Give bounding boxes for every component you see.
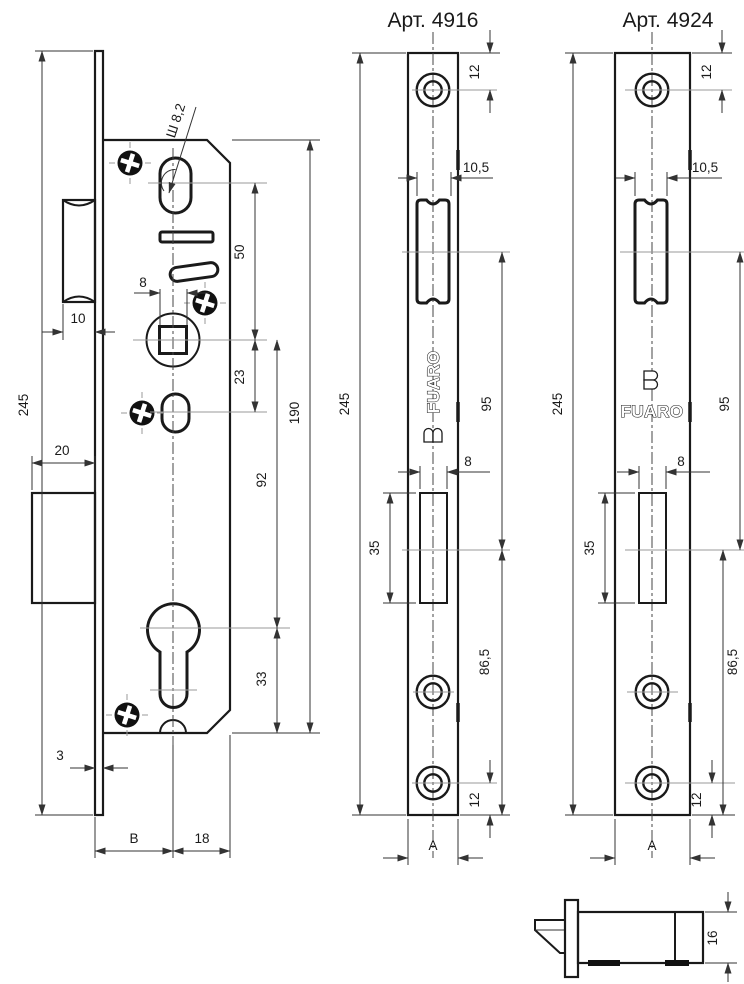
dim-axis-to-back-edge: 18 xyxy=(194,831,209,846)
top-oval-slot xyxy=(160,158,191,213)
dim-overall-height: 245 xyxy=(337,393,352,416)
dim-plate-width: A xyxy=(647,838,656,853)
dim-plate-width: A xyxy=(428,838,437,853)
fuaro-emblem-icon xyxy=(424,429,442,443)
dim-slot-note: Ш 8,2 xyxy=(163,102,188,140)
dim-oval-to-spindle: 50 xyxy=(232,244,247,259)
dim-latch-to-deadbolt: 95 xyxy=(479,396,494,411)
title-article-4916: Арт. 4916 xyxy=(388,9,479,32)
dim-spindle-to-cylinder: 92 xyxy=(254,472,269,487)
deadbolt xyxy=(32,493,95,603)
dim-bottom-screw-offset: 12 xyxy=(467,792,482,807)
dim-faceplate-thickness: 3 xyxy=(56,748,64,763)
faceplate-4924-view: FUARO xyxy=(550,30,744,865)
title-article-4924: Арт. 4924 xyxy=(623,9,714,32)
dim-deadbolt-width: 20 xyxy=(54,443,69,458)
dim-latch-opening-width: 10,5 xyxy=(463,160,489,175)
screw-icon xyxy=(121,392,163,434)
fuaro-logo-text: FUARO xyxy=(621,402,684,421)
faceplate-4916-view: FUARO xyxy=(337,30,510,865)
dim-deadbolt-to-bottom: 86,5 xyxy=(477,649,492,675)
thin-slot xyxy=(160,232,213,242)
dim-deadbolt-opening-width: 8 xyxy=(464,454,472,469)
lock-side-view: 16 xyxy=(535,892,737,982)
dim-top-screw-offset: 12 xyxy=(699,64,714,79)
lock-case-outline xyxy=(103,140,230,733)
dim-body-thickness: 16 xyxy=(705,930,720,945)
fuaro-logo-text: FUARO xyxy=(424,351,443,414)
faceplate-edge xyxy=(565,900,578,977)
dim-deadbolt-opening-width: 8 xyxy=(677,454,685,469)
dim-latch-to-deadbolt: 95 xyxy=(717,396,732,411)
latch-bevel xyxy=(535,920,565,953)
dim-bottom-screw-offset: 12 xyxy=(689,792,704,807)
faceplate-side xyxy=(95,51,103,815)
lock-case-edge xyxy=(578,912,703,963)
screw-icon xyxy=(106,694,148,736)
screw-icon xyxy=(109,142,151,184)
technical-drawing-page: Арт. 4916 Арт. 4924 xyxy=(0,0,744,984)
lock-body-view: 245 10 20 3 B 18 8 Ш 8,2 50 23 92 190 33 xyxy=(16,51,320,858)
dimensions xyxy=(573,30,740,858)
dim-backset: B xyxy=(129,831,138,846)
dim-deadbolt-opening-height: 35 xyxy=(367,540,382,555)
dim-cylinder-to-bottom: 33 xyxy=(254,671,269,686)
dim-spindle-to-lower-oval: 23 xyxy=(232,369,247,384)
dim-deadbolt-opening-height: 35 xyxy=(582,540,597,555)
dimensions xyxy=(360,30,502,858)
dim-overall-height: 245 xyxy=(16,394,31,417)
dim-body-height: 190 xyxy=(287,402,302,425)
screw-icon xyxy=(184,282,226,324)
lock-drawing-svg: Арт. 4916 Арт. 4924 xyxy=(0,0,744,984)
dim-latch-width: 10 xyxy=(70,311,85,326)
dim-spindle-square: 8 xyxy=(139,275,147,290)
curved-slot xyxy=(169,262,218,283)
fuaro-emblem-icon xyxy=(644,371,658,389)
lower-oval-slot xyxy=(162,394,189,432)
latch-bolt xyxy=(63,200,95,302)
mounting-tab xyxy=(665,960,689,966)
dim-latch-opening-width: 10,5 xyxy=(692,160,718,175)
dimensions xyxy=(32,51,310,851)
mounting-tab xyxy=(588,960,620,966)
dim-overall-height: 245 xyxy=(550,393,565,416)
dim-deadbolt-to-bottom: 86,5 xyxy=(725,649,740,675)
dim-top-screw-offset: 12 xyxy=(467,64,482,79)
fuaro-logo: FUARO xyxy=(424,351,443,442)
